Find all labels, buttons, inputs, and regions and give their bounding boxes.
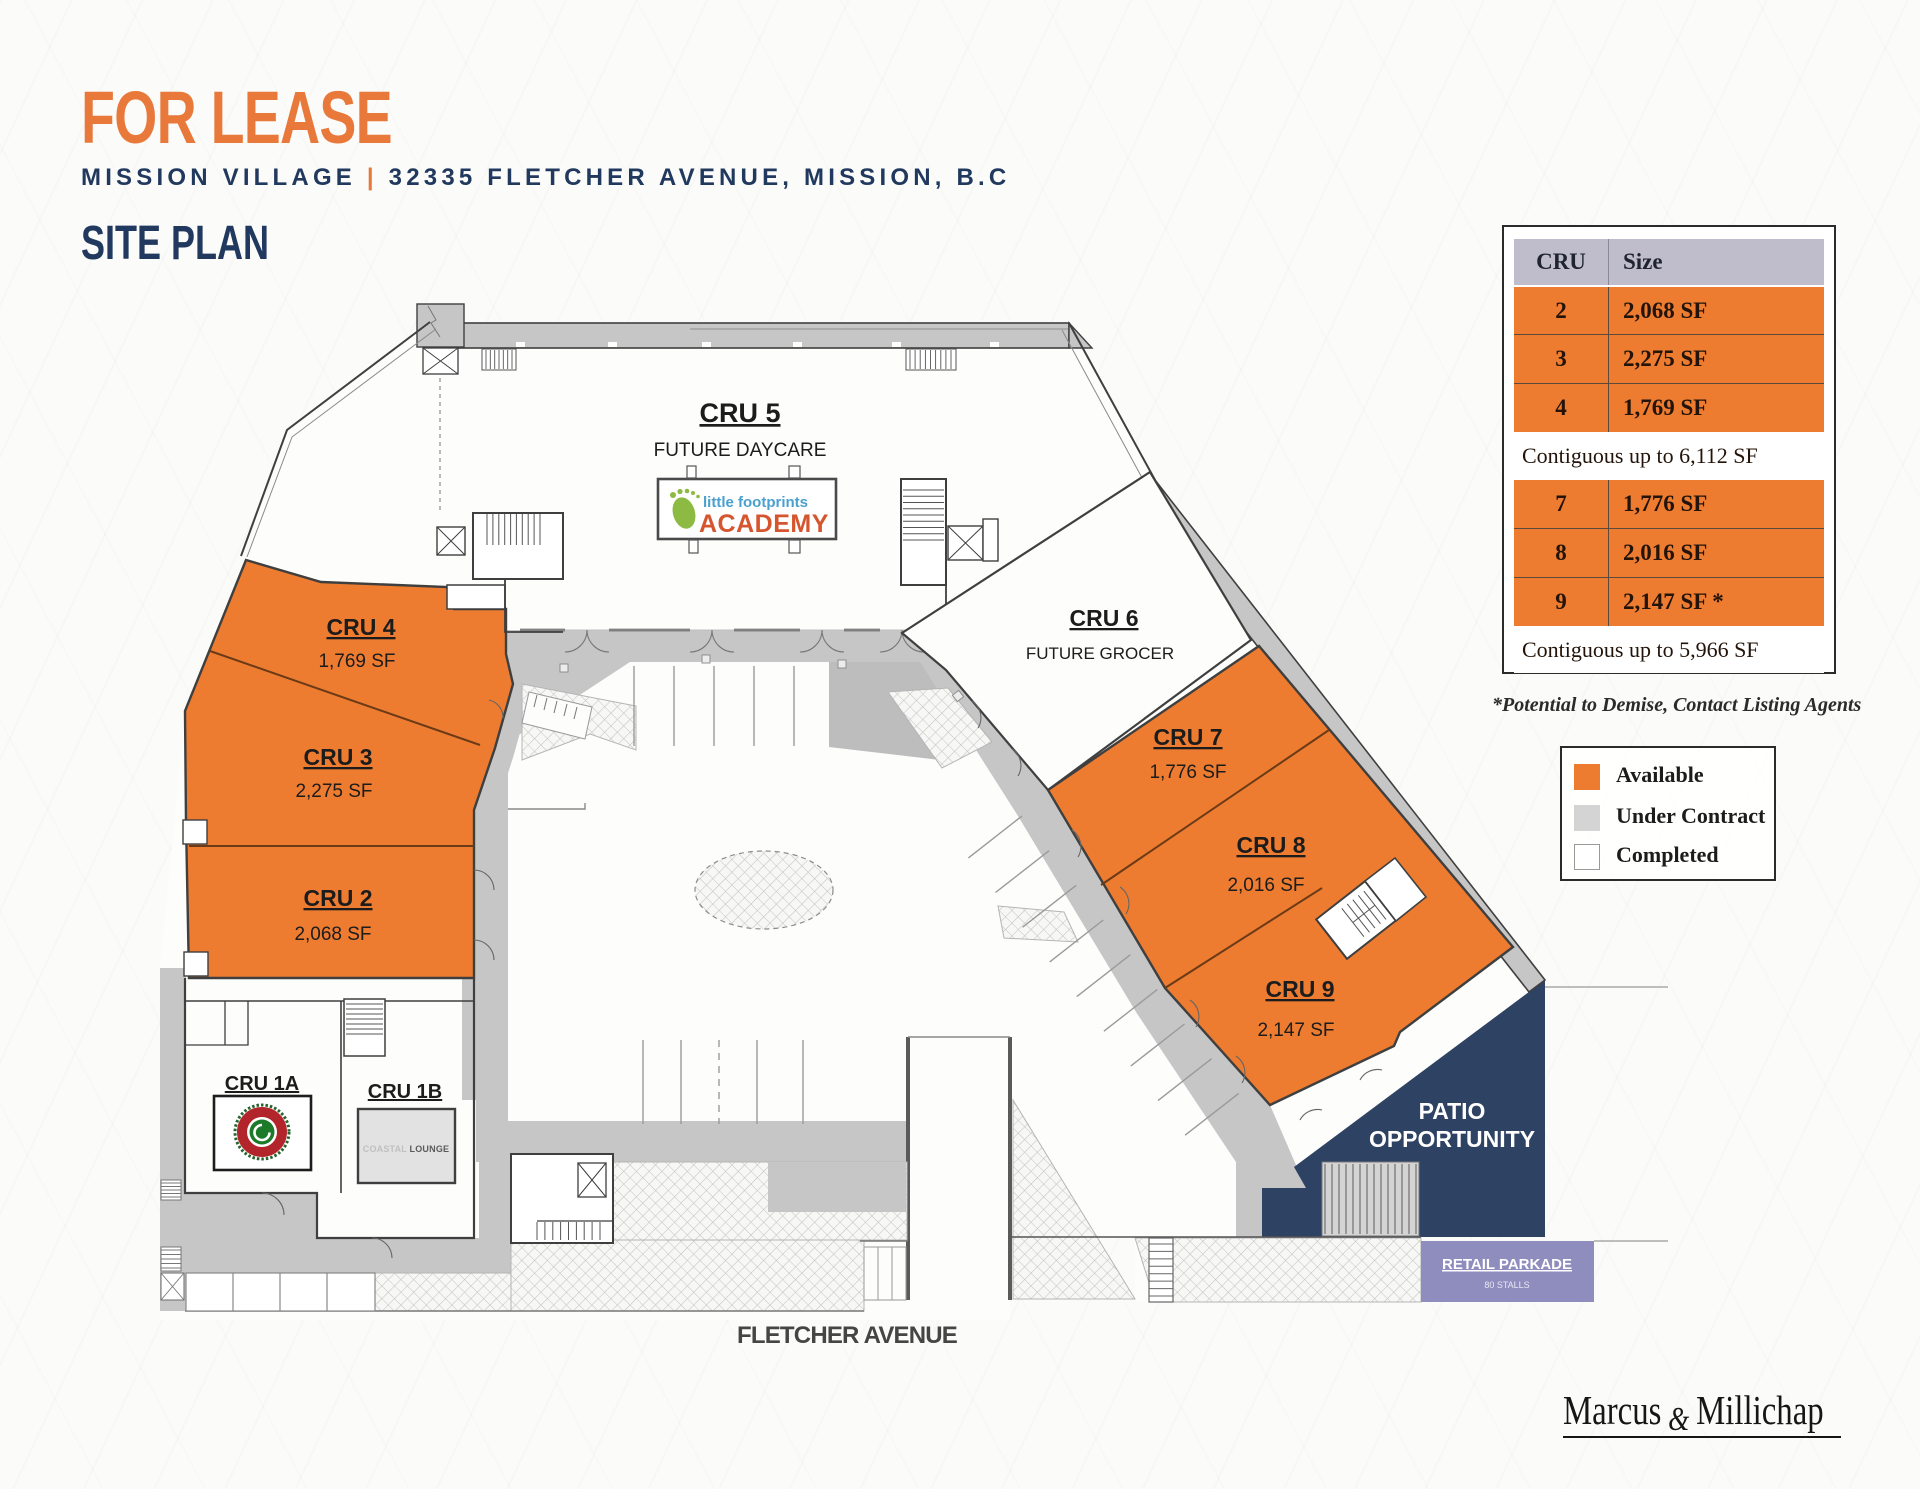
svg-text:2,068 SF: 2,068 SF [294,924,371,945]
svg-text:FUTURE GROCER: FUTURE GROCER [1026,644,1174,663]
svg-text:CRU 5: CRU 5 [699,398,780,428]
svg-text:CRU 3: CRU 3 [303,744,372,770]
svg-text:little footprints: little footprints [703,494,808,511]
svg-text:CRU 2: CRU 2 [303,885,372,911]
svg-text:CRU 6: CRU 6 [1069,605,1138,631]
svg-text:FUTURE DAYCARE: FUTURE DAYCARE [654,440,827,461]
svg-text:COASTAL LOUNGE: COASTAL LOUNGE [363,1144,449,1154]
svg-text:OPPORTUNITY: OPPORTUNITY [1369,1126,1535,1152]
svg-text:CRU 7: CRU 7 [1153,724,1222,750]
svg-text:CRU 1A: CRU 1A [225,1073,299,1095]
svg-text:CRU 9: CRU 9 [1265,976,1334,1002]
svg-text:CRU 1B: CRU 1B [368,1081,442,1103]
svg-text:ACADEMY: ACADEMY [699,510,829,538]
svg-text:1,769 SF: 1,769 SF [318,651,395,672]
svg-text:PATIO: PATIO [1419,1098,1486,1124]
svg-text:1,776 SF: 1,776 SF [1149,762,1226,783]
svg-text:CRU 4: CRU 4 [326,614,395,640]
svg-text:2,016 SF: 2,016 SF [1227,875,1304,896]
svg-text:2,275 SF: 2,275 SF [295,781,372,802]
svg-text:CRU 8: CRU 8 [1236,832,1305,858]
svg-text:2,147 SF: 2,147 SF [1257,1020,1334,1041]
svg-text:80 STALLS: 80 STALLS [1484,1280,1529,1290]
svg-text:RETAIL PARKADE: RETAIL PARKADE [1442,1256,1572,1273]
